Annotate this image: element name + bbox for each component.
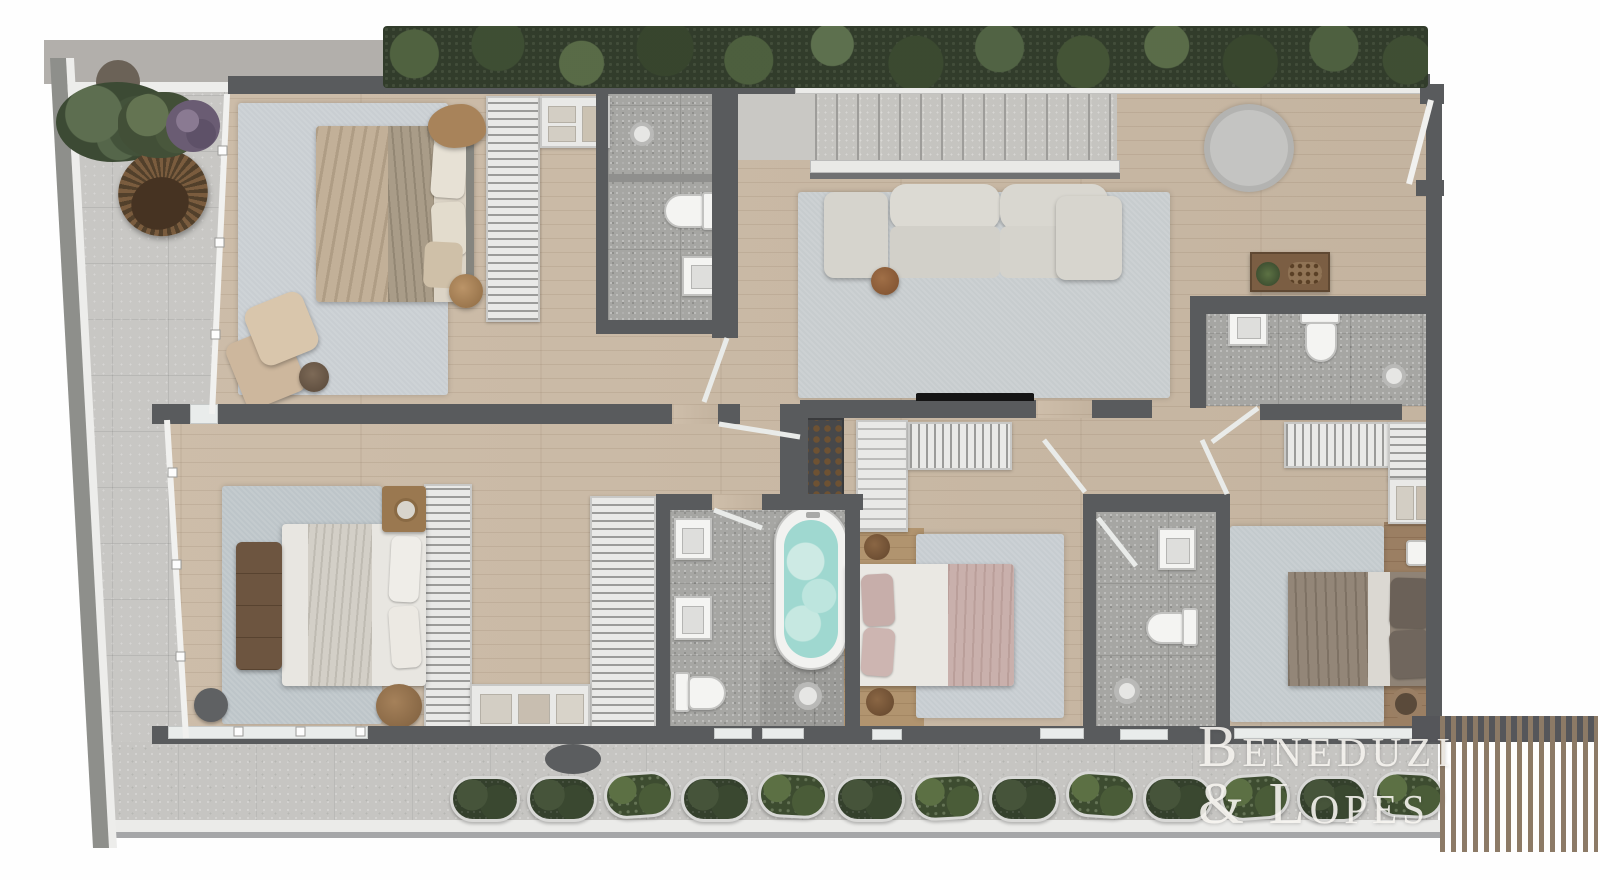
wall-bath1-right <box>712 88 738 338</box>
pillow <box>1389 577 1431 628</box>
master-closet-shelf <box>470 684 590 732</box>
planter-boxwood <box>835 776 905 822</box>
master-wardrobe-left <box>424 484 472 732</box>
planter-fern <box>757 770 829 820</box>
pillow <box>1389 629 1431 679</box>
planter-boxwood <box>989 776 1059 822</box>
wall-right-corner-mid <box>1416 180 1444 196</box>
bedroom4-speaker <box>1406 540 1428 566</box>
bedroom3-hanger-rack <box>908 422 1012 470</box>
balcony-drain <box>545 744 601 774</box>
door-opening-masterbath <box>712 494 762 510</box>
planter-boxwood <box>450 776 520 822</box>
staircase <box>815 88 1117 160</box>
planter-boxwood <box>681 776 751 822</box>
wall-bath1-bottom <box>596 320 726 334</box>
bathroom1-shower-curb <box>608 174 712 182</box>
bottom-window-4 <box>1040 728 1084 739</box>
terrace-slider-door <box>190 404 218 424</box>
pergola-slats <box>1440 716 1598 852</box>
brand-watermark: Beneduzi & Lopes <box>1198 718 1455 832</box>
bottom-window-2 <box>762 728 804 739</box>
master-nightstand-bottom <box>376 684 422 728</box>
wall-bath4-right <box>1216 494 1230 736</box>
bedroom3-bed <box>846 564 1014 686</box>
toilet-icon <box>1146 612 1186 644</box>
sink-icon <box>674 518 712 560</box>
tv-wall-unit <box>916 394 1034 401</box>
wall-bath4-left <box>1083 494 1096 736</box>
top-hedge-planter <box>383 26 1428 88</box>
bedroom3-pouf-bottom <box>866 688 894 716</box>
pillow <box>388 605 422 669</box>
master-bed-bench <box>236 542 282 670</box>
shower-head-icon <box>630 122 654 146</box>
shower-head-icon <box>794 682 822 710</box>
bottom-glass-master <box>168 726 368 739</box>
terrace-plant-purple <box>166 100 220 152</box>
bedroom1-bed <box>316 126 474 302</box>
wall-masterbath-left <box>656 494 670 740</box>
stair-rail-shadow <box>810 173 1120 179</box>
bedroom1-organic-table <box>428 104 486 148</box>
stair-glass-rail <box>810 160 1120 173</box>
sink-icon <box>674 596 712 640</box>
master-pouf <box>194 688 228 722</box>
toilet-tank <box>1182 608 1198 646</box>
bottom-window-3 <box>872 729 902 740</box>
wall-shoe-nook <box>780 404 808 502</box>
wall-masterbath-right <box>845 494 860 740</box>
wall-bath2-top <box>1190 296 1440 314</box>
wall-living-bedroom3 <box>800 400 1152 418</box>
shoe-rack <box>806 418 844 502</box>
master-bed <box>282 524 426 686</box>
hall-console-table <box>1250 252 1330 292</box>
sink-icon <box>1158 528 1196 570</box>
shower-head-icon <box>1114 678 1140 704</box>
brand-line-1: Beneduzi <box>1198 718 1455 775</box>
sofa <box>822 184 1124 280</box>
master-nightstand-top <box>382 486 426 532</box>
planter-fern <box>1064 770 1137 821</box>
wall-bath2-bottom <box>1260 404 1402 420</box>
wall-bath4-top <box>1083 494 1230 512</box>
pillow <box>861 573 896 627</box>
plant-icon <box>1256 262 1280 286</box>
bathtub-icon <box>774 506 848 670</box>
wall-bedroom1-south <box>152 404 740 424</box>
floor-plan-canvas: Beneduzi & Lopes <box>0 0 1600 880</box>
bedroom4-hanger-rack <box>1284 422 1390 468</box>
bottom-window-1 <box>714 728 752 739</box>
toilet-icon <box>1305 322 1337 362</box>
pillow <box>388 535 421 602</box>
brand-line-2: & Lopes <box>1198 775 1455 832</box>
bedroom1-wardrobe <box>486 96 540 322</box>
bedroom1-small-table <box>299 362 329 392</box>
pillow <box>430 139 468 199</box>
bedroom4-bed <box>1288 572 1434 686</box>
hall-round-rug <box>1204 104 1294 192</box>
stair-landing <box>738 88 817 160</box>
toilet-icon <box>664 194 706 228</box>
pillow <box>860 627 895 677</box>
coffee-table <box>871 267 899 295</box>
bottom-window-5 <box>1120 729 1168 740</box>
bedroom3-shelf-unit <box>856 420 908 532</box>
door-opening-bedroom3 <box>1036 400 1092 418</box>
planter-fern <box>602 770 675 821</box>
wall-bath1-left <box>596 88 608 334</box>
planter-boxwood <box>527 776 597 822</box>
bedroom1-side-table <box>449 274 483 308</box>
door-opening <box>672 404 718 424</box>
shower-head-icon <box>1382 364 1406 388</box>
bedroom3-pouf-top <box>864 534 890 560</box>
master-wardrobe-right <box>590 496 656 732</box>
planter-fern <box>911 772 983 822</box>
toilet-icon <box>688 676 726 710</box>
